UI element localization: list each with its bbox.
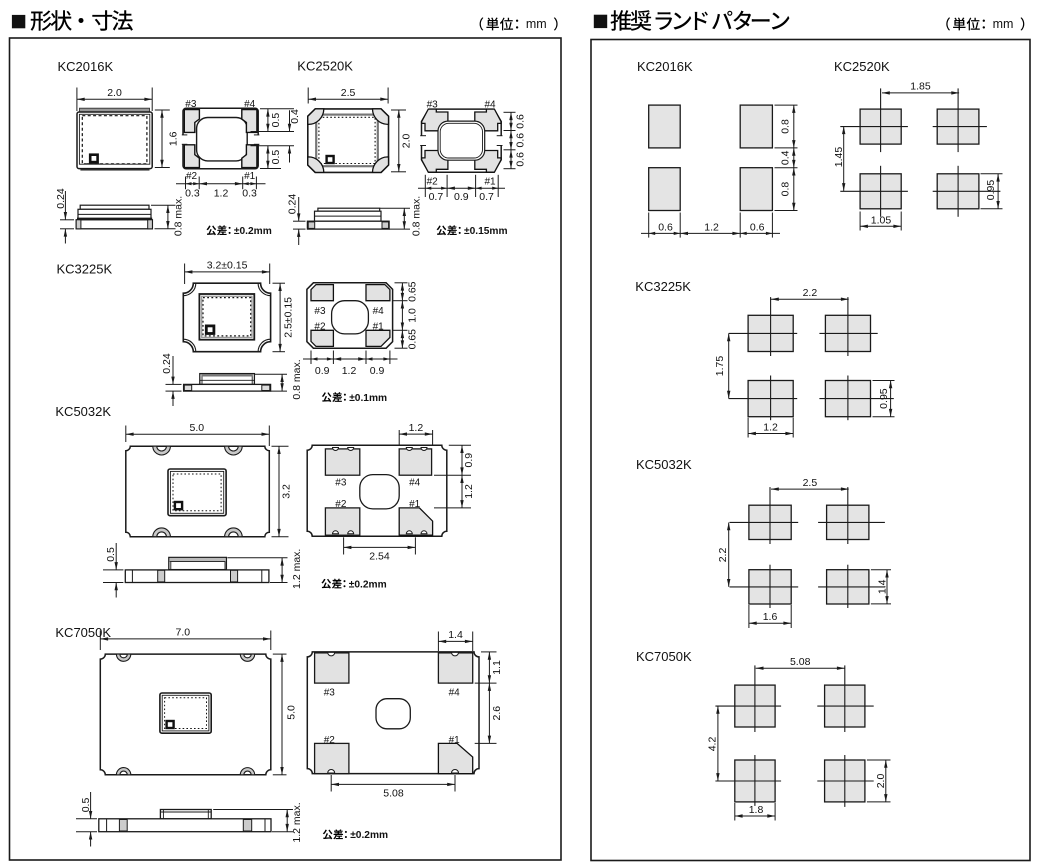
svg-text:±0.1mm: ±0.1mm	[349, 393, 387, 404]
svg-text:0.6: 0.6	[750, 222, 765, 234]
svg-text:mm: mm	[993, 17, 1014, 31]
svg-text:4.2: 4.2	[706, 737, 718, 752]
svg-text:#1: #1	[449, 735, 461, 746]
svg-text:1.45: 1.45	[833, 147, 845, 168]
svg-text:2.0: 2.0	[107, 87, 122, 99]
svg-text:KC2520K: KC2520K	[834, 59, 890, 74]
svg-text:1.85: 1.85	[910, 81, 931, 93]
svg-text:1.2: 1.2	[409, 422, 424, 434]
svg-text:±0.2mm: ±0.2mm	[350, 830, 388, 841]
svg-text:0.9: 0.9	[454, 191, 469, 203]
svg-text:1.4: 1.4	[448, 629, 463, 641]
svg-text:#4: #4	[449, 688, 461, 699]
svg-text:7.0: 7.0	[175, 627, 190, 639]
svg-text:0.5: 0.5	[270, 113, 282, 128]
svg-text:2.5±0.15: 2.5±0.15	[283, 297, 295, 338]
svg-text:#3: #3	[324, 688, 336, 699]
svg-text:0.6: 0.6	[658, 222, 673, 234]
svg-text:1.2: 1.2	[214, 188, 229, 200]
svg-text:1.75: 1.75	[714, 356, 726, 377]
svg-text:2.5: 2.5	[341, 87, 356, 99]
svg-text:0.95: 0.95	[985, 180, 997, 201]
svg-text:2.54: 2.54	[369, 551, 390, 563]
svg-text:2.5: 2.5	[803, 477, 818, 489]
svg-text:5.0: 5.0	[285, 705, 297, 720]
svg-text:KC2016K: KC2016K	[637, 59, 693, 74]
svg-text:0.5: 0.5	[80, 798, 92, 813]
svg-text:#2: #2	[427, 176, 439, 187]
svg-text:0.7: 0.7	[429, 191, 444, 203]
svg-text:0.4: 0.4	[289, 109, 301, 124]
svg-text:1.1: 1.1	[491, 660, 503, 675]
svg-text:1.2 max.: 1.2 max.	[291, 802, 303, 842]
svg-text:1.2: 1.2	[342, 365, 357, 377]
svg-text:0.7: 0.7	[479, 191, 494, 203]
svg-text:±0.2mm: ±0.2mm	[234, 226, 272, 237]
svg-text:0.9: 0.9	[370, 365, 385, 377]
svg-text:1.0: 1.0	[406, 308, 418, 323]
svg-text:KC3225K: KC3225K	[57, 261, 113, 276]
svg-text:KC2016K: KC2016K	[58, 59, 114, 74]
svg-text:1.4: 1.4	[876, 579, 888, 594]
svg-text:1.2: 1.2	[463, 484, 475, 499]
svg-text:#2: #2	[186, 171, 198, 182]
svg-text:0.6: 0.6	[514, 152, 526, 167]
svg-text:#3: #3	[314, 306, 326, 317]
svg-text:#1: #1	[409, 499, 421, 510]
svg-text:5.08: 5.08	[383, 788, 404, 800]
svg-text:0.95: 0.95	[878, 388, 890, 409]
svg-text:#1: #1	[485, 176, 497, 187]
svg-text:3.2±0.15: 3.2±0.15	[207, 260, 248, 272]
svg-text:0.8 max.: 0.8 max.	[173, 196, 185, 236]
svg-text:0.8 max.: 0.8 max.	[291, 359, 303, 399]
svg-text:1.05: 1.05	[871, 215, 892, 227]
svg-text:±0.15mm: ±0.15mm	[464, 226, 508, 237]
svg-text:1.2: 1.2	[763, 422, 778, 434]
svg-text:0.3: 0.3	[242, 188, 257, 200]
svg-text:#3: #3	[335, 478, 347, 489]
svg-text:1.2: 1.2	[704, 222, 719, 234]
svg-text:KC2520K: KC2520K	[297, 59, 353, 74]
svg-text:5.0: 5.0	[189, 422, 204, 434]
svg-text:1.8: 1.8	[749, 804, 764, 816]
svg-text:1.6: 1.6	[167, 131, 179, 146]
svg-text:#2: #2	[335, 499, 347, 510]
svg-text:0.8 max.: 0.8 max.	[411, 196, 423, 236]
svg-text:0.5: 0.5	[270, 150, 282, 165]
svg-text:mm: mm	[526, 17, 547, 31]
svg-text:1.2 max.: 1.2 max.	[291, 549, 303, 589]
svg-text:0.9: 0.9	[315, 365, 330, 377]
svg-text:#1: #1	[244, 171, 256, 182]
svg-text:KC5032K: KC5032K	[55, 404, 111, 419]
svg-text:0.6: 0.6	[514, 133, 526, 148]
svg-text:1.6: 1.6	[763, 611, 778, 623]
svg-text:#2: #2	[324, 735, 336, 746]
svg-text:0.5: 0.5	[105, 547, 117, 562]
svg-text:±0.2mm: ±0.2mm	[349, 579, 387, 590]
svg-text:2.2: 2.2	[803, 287, 818, 299]
svg-text:KC7050K: KC7050K	[636, 649, 692, 664]
svg-text:#2: #2	[314, 321, 326, 332]
svg-text:0.9: 0.9	[463, 453, 475, 468]
svg-text:0.8: 0.8	[780, 182, 792, 197]
svg-text:0.65: 0.65	[406, 329, 418, 350]
svg-text:#4: #4	[409, 478, 421, 489]
svg-text:3.2: 3.2	[281, 484, 293, 499]
svg-text:5.08: 5.08	[790, 656, 811, 668]
svg-text:0.24: 0.24	[286, 194, 298, 215]
svg-text:2.0: 2.0	[875, 774, 887, 789]
svg-text:0.4: 0.4	[780, 150, 792, 165]
svg-text:2.6: 2.6	[491, 706, 503, 721]
svg-text:0.24: 0.24	[161, 353, 173, 374]
svg-text:2.0: 2.0	[401, 133, 413, 148]
svg-text:0.24: 0.24	[55, 188, 67, 209]
svg-text:0.3: 0.3	[185, 188, 200, 200]
svg-text:0.65: 0.65	[406, 281, 418, 302]
svg-text:KC3225K: KC3225K	[635, 279, 691, 294]
svg-text:#1: #1	[373, 321, 385, 332]
svg-text:0.6: 0.6	[514, 114, 526, 129]
svg-text:0.8: 0.8	[780, 119, 792, 134]
svg-text:KC7050K: KC7050K	[55, 625, 111, 640]
svg-text:KC5032K: KC5032K	[636, 457, 692, 472]
svg-text:2.2: 2.2	[717, 548, 729, 563]
svg-text:#4: #4	[373, 306, 385, 317]
